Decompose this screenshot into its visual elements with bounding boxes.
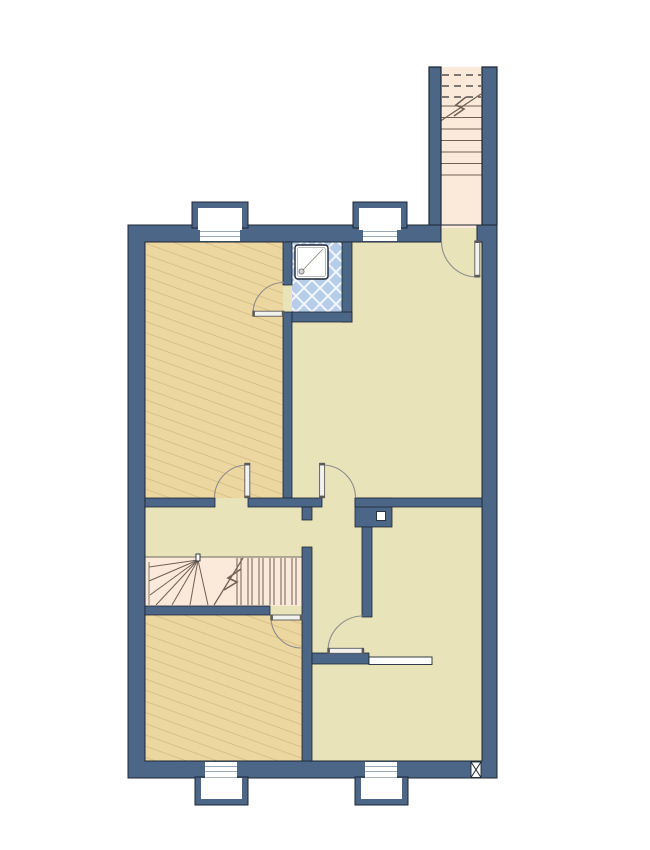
external-staircase-tower — [429, 67, 497, 228]
mid-wall-left — [145, 498, 215, 507]
external-stair-floor — [441, 67, 482, 228]
stairhall-corridor-stub — [302, 507, 312, 520]
tower-right-wall — [482, 67, 497, 225]
window-opening — [200, 226, 240, 241]
internal-winder-staircase — [145, 554, 302, 606]
wall-divider-top-rooms-lower — [283, 312, 292, 498]
winder-newel-post — [196, 554, 200, 561]
corridor-right-wall — [362, 527, 372, 617]
shower-tray — [295, 245, 328, 279]
window-bay-top-left — [192, 202, 248, 241]
shower-drain — [299, 269, 304, 274]
shower-room-right-wall — [342, 242, 352, 322]
window-opening — [363, 226, 397, 241]
shower-room-bottom-wall — [292, 312, 352, 322]
floor-plan-canvas — [0, 0, 650, 850]
mid-wall-right — [355, 498, 482, 507]
room-floors — [145, 228, 482, 761]
stairhall-corridor-wall — [302, 547, 312, 761]
wall-vent-x-symbol — [471, 762, 481, 778]
wall-divider-top-rooms-upper — [283, 242, 292, 285]
tower-left-wall — [429, 67, 441, 225]
mid-wall-center — [248, 498, 322, 507]
room-top-left-hatched-floor — [145, 242, 283, 498]
stair-bottom-wall — [145, 606, 270, 615]
pass-through-opening — [369, 657, 432, 665]
window-opening — [205, 762, 237, 778]
floor-plan — [0, 0, 650, 850]
window-opening — [365, 762, 397, 778]
flue-square-symbol — [377, 512, 386, 521]
corridor-bottom-wall — [312, 653, 369, 664]
